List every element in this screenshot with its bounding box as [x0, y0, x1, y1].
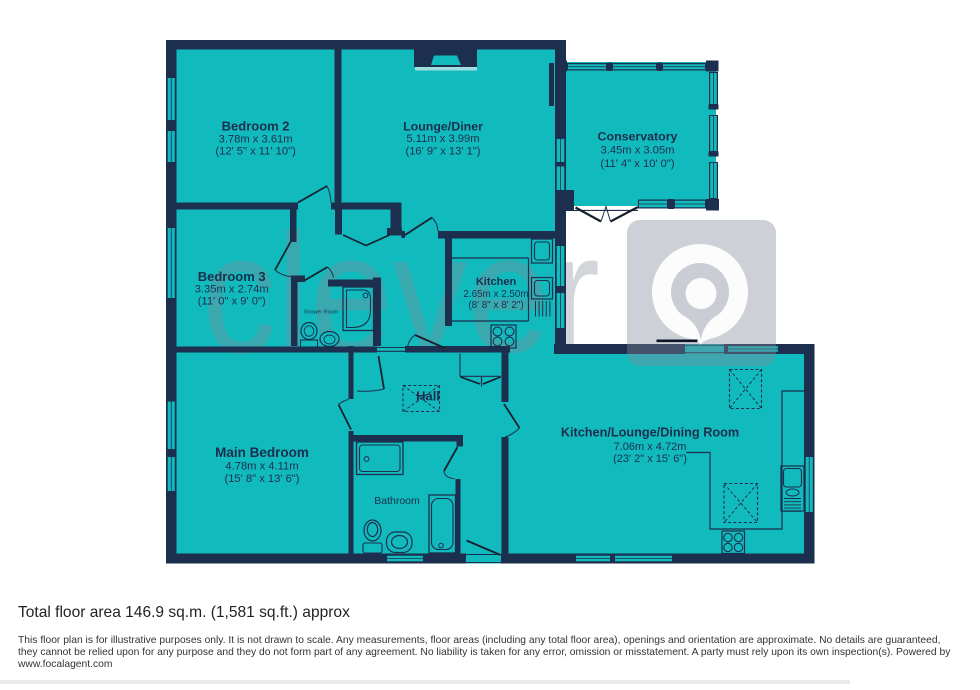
svg-text:Kitchen/Lounge/Dining Room: Kitchen/Lounge/Dining Room — [561, 426, 739, 440]
svg-text:3.45m x 3.05m: 3.45m x 3.05m — [601, 145, 675, 157]
svg-text:they cannot be relied upon for: they cannot be relied upon for any purpo… — [18, 647, 951, 658]
svg-text:4.78m x 4.11m: 4.78m x 4.11m — [225, 460, 298, 472]
svg-text:Bathroom: Bathroom — [374, 495, 420, 507]
svg-text:7.06m x 4.72m: 7.06m x 4.72m — [614, 441, 687, 453]
svg-text:Conservatory: Conservatory — [598, 129, 678, 143]
svg-text:(11' 4" x 10' 0"): (11' 4" x 10' 0") — [600, 158, 674, 170]
svg-text:Main Bedroom: Main Bedroom — [215, 445, 309, 460]
svg-text:(23' 2" x 15' 6"): (23' 2" x 15' 6") — [613, 453, 687, 465]
svg-text:Bedroom 2: Bedroom 2 — [222, 119, 290, 134]
svg-text:(15' 8" x 13' 6"): (15' 8" x 13' 6") — [224, 473, 299, 485]
svg-text:3.78m x 3.61m: 3.78m x 3.61m — [219, 134, 293, 146]
svg-text:Hall: Hall — [416, 388, 440, 403]
svg-text:Total floor area 146.9 sq.m. (: Total floor area 146.9 sq.m. (1,581 sq.f… — [18, 604, 350, 621]
svg-text:This floor plan is for illustr: This floor plan is for illustrative purp… — [18, 635, 940, 646]
svg-text:(12' 5" x 11' 10"): (12' 5" x 11' 10") — [215, 146, 296, 158]
svg-text:(16' 9" x 13' 1"): (16' 9" x 13' 1") — [405, 145, 480, 157]
svg-text:2.65m x 2.50m: 2.65m x 2.50m — [463, 289, 528, 300]
svg-text:(8' 8" x 8' 2"): (8' 8" x 8' 2") — [468, 300, 523, 311]
svg-text:5.11m x 3.99m: 5.11m x 3.99m — [406, 133, 479, 145]
svg-text:Kitchen: Kitchen — [476, 276, 517, 288]
svg-text:3.35m x 2.74m: 3.35m x 2.74m — [195, 284, 269, 296]
svg-text:www.focalagent.com: www.focalagent.com — [17, 659, 112, 670]
svg-text:(11' 0" x 9' 0"): (11' 0" x 9' 0") — [198, 296, 266, 308]
svg-text:Shower Room: Shower Room — [304, 310, 339, 316]
svg-text:Bedroom 3: Bedroom 3 — [198, 269, 266, 284]
svg-text:Lounge/Diner: Lounge/Diner — [403, 119, 483, 133]
